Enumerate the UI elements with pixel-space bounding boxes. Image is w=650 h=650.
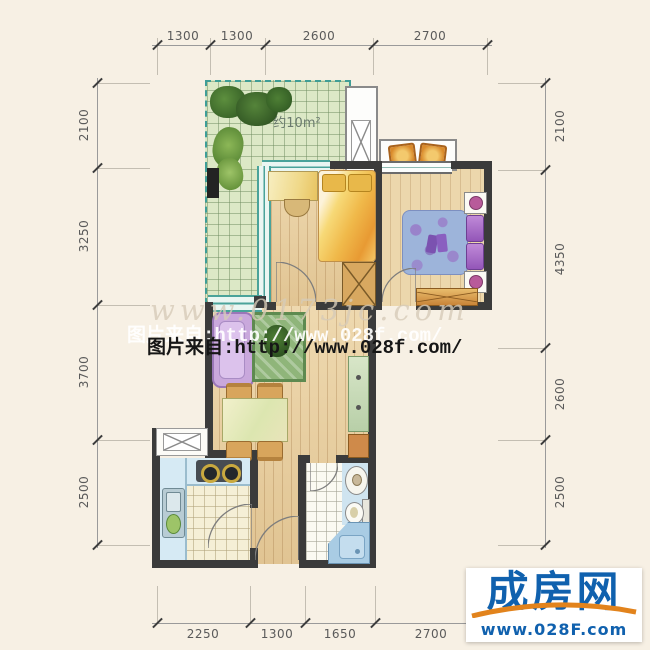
extension-line: [157, 586, 158, 623]
burner-icon: [222, 464, 241, 483]
wall: [298, 455, 310, 463]
sink-basin: [166, 492, 181, 512]
extension-line: [498, 348, 545, 349]
extension-line: [498, 440, 545, 441]
bay-window-sill: [380, 161, 452, 174]
dimension-line-top: [152, 45, 492, 46]
shower-tray: [339, 535, 365, 559]
dim-label-right-3: 2600: [553, 371, 567, 417]
lamp-icon: [469, 275, 483, 289]
wall: [152, 560, 256, 568]
dim-label-top-4: 2700: [405, 29, 455, 43]
site-logo: 成房网 www.028F.com: [466, 568, 642, 642]
extension-line: [250, 586, 251, 623]
burner-icon: [201, 464, 220, 483]
pillow-icon: [466, 215, 484, 242]
pillow-icon: [436, 234, 448, 253]
dim-label-bottom-4: 2700: [406, 627, 456, 641]
door-arc-kitchen: [208, 504, 252, 548]
dimension-line-bottom: [152, 623, 492, 624]
dim-label-left-3: 3700: [77, 349, 91, 395]
dining-chair: [257, 441, 283, 461]
logo-url-box: www.028F.com: [466, 618, 642, 642]
logo-roof-icon: [468, 598, 640, 618]
dim-label-left-1: 2100: [77, 102, 91, 148]
bed-double-warm: [318, 170, 376, 262]
dim-label-left-4: 2500: [77, 469, 91, 515]
dim-label-bottom-1: 2250: [178, 627, 228, 641]
dim-label-top-3: 2600: [294, 29, 344, 43]
pillow-icon: [348, 174, 372, 192]
extension-line: [498, 545, 545, 546]
terrace-column: [207, 168, 219, 198]
washbasin: [345, 466, 368, 495]
extension-line: [498, 170, 545, 171]
wall: [298, 463, 306, 560]
terrace-area-label: 约10m²: [252, 112, 342, 130]
extension-line: [97, 545, 150, 546]
desk: [268, 171, 318, 201]
sink-plant-icon: [166, 514, 181, 534]
fridge-niche: [156, 428, 208, 456]
floorplan-canvas: 1300 1300 2600 2700 2250 1300 1650 2700 …: [0, 0, 650, 650]
shrub-icon: [266, 87, 292, 112]
basin-bowl-icon: [352, 474, 362, 486]
logo-url: www.028F.com: [466, 618, 642, 642]
extension-line: [375, 586, 376, 623]
door-arc-bathroom: [310, 463, 338, 491]
extension-line: [97, 168, 150, 169]
shaft-x-icon: [351, 120, 371, 164]
stove: [196, 460, 242, 482]
dim-label-right-1: 2100: [553, 103, 567, 149]
extension-line: [305, 586, 306, 623]
toilet: [345, 502, 364, 524]
lamp-icon: [469, 196, 483, 210]
dimension-line-left: [97, 78, 98, 548]
kitchen-sink: [162, 488, 185, 538]
knob-icon: [356, 375, 361, 380]
dim-label-top-1: 1300: [158, 29, 208, 43]
extension-line: [97, 440, 150, 441]
dining-table: [222, 398, 288, 442]
dim-label-bottom-3: 1650: [315, 627, 365, 641]
extension-line: [97, 83, 150, 84]
dim-label-top-2: 1300: [212, 29, 262, 43]
hall-cabinet: [348, 356, 369, 432]
dim-label-right-4: 2500: [553, 469, 567, 515]
dimension-line-right: [545, 78, 546, 548]
niche-x-icon: [163, 433, 201, 451]
extension-line: [498, 83, 545, 84]
toilet-seat-icon: [350, 507, 358, 518]
shoe-cabinet: [348, 434, 369, 458]
dim-label-left-2: 3250: [77, 213, 91, 259]
drain-icon: [355, 549, 360, 554]
door-arc-entry: [255, 516, 299, 560]
watermark-text: 图片来自:http://www.028f.com/: [147, 332, 462, 359]
dim-label-bottom-2: 1300: [252, 627, 302, 641]
pillow-icon: [466, 243, 484, 270]
nightstand: [464, 192, 487, 214]
knob-icon: [356, 405, 361, 410]
extension-line: [97, 305, 150, 306]
dim-label-right-2: 4350: [553, 236, 567, 282]
bed-double-cool: [402, 210, 468, 275]
pillow-icon: [322, 174, 346, 192]
